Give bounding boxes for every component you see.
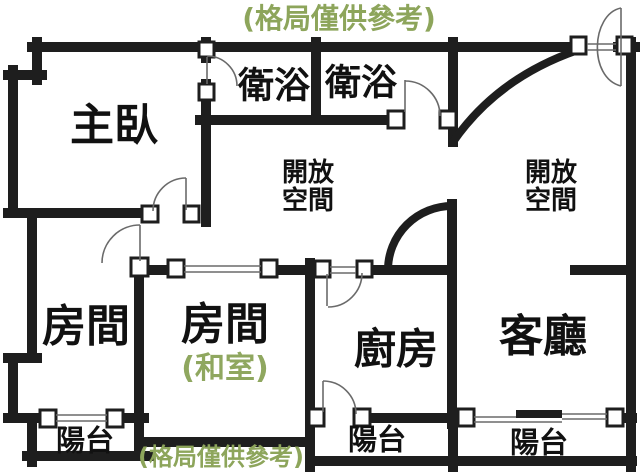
post-balcony2-door-left (309, 409, 324, 426)
post-entry-right (617, 37, 632, 54)
label-master-bedroom: 主臥 (70, 102, 158, 150)
label-open-space-1: 開放 空間 (282, 159, 334, 215)
label-room-1: 房間 (42, 303, 130, 351)
post-room2-window-left (168, 260, 184, 277)
post-bath2-door-left (388, 111, 404, 128)
label-room-2-sub: (和室) (181, 353, 268, 385)
label-balcony-3: 陽台 (510, 427, 568, 458)
living-slider-panel2 (562, 414, 607, 419)
post-living-slider-right (607, 409, 623, 426)
note-top: (格局僅供參考) (242, 4, 436, 34)
floorplan-svg (0, 0, 640, 474)
post-bath2-door-right (440, 111, 456, 128)
wall-kitchen-curve (388, 206, 452, 270)
bath2-door-arc (405, 81, 440, 116)
post-bath1-door-top (199, 42, 214, 57)
post-kitchen-door-right (357, 261, 372, 277)
label-balcony-1: 陽台 (56, 425, 114, 456)
wall-entry-curve (453, 50, 578, 142)
kitchen-door-threshold (330, 267, 356, 273)
post-living-slider-left (458, 409, 474, 426)
label-balcony-2: 陽台 (348, 424, 406, 455)
label-open-space-2: 開放 空間 (525, 159, 577, 215)
label-kitchen: 廚房 (354, 326, 438, 371)
label-bathroom-1: 衛浴 (238, 68, 310, 107)
post-bath1-door-bottom (199, 84, 214, 100)
post-room2-window-right (261, 260, 277, 277)
balcony2-door-arc (323, 381, 356, 414)
post-entry-left (571, 37, 586, 54)
label-room-2: 房間 (181, 301, 269, 349)
living-slider-bar (516, 410, 562, 418)
room1-window (56, 415, 107, 421)
post-room1-window-left (40, 410, 56, 427)
post-master-door-left (142, 206, 158, 222)
bath1-door-arc (207, 56, 237, 86)
label-bathroom-2: 衛浴 (325, 65, 397, 104)
room2-window (184, 266, 261, 272)
note-bottom: (格局僅供參考) (138, 445, 304, 471)
floorplan: (格局僅供參考) 主臥 衛浴 衛浴 開放 空間 開放 空間 房間 房間 (和室)… (0, 0, 640, 474)
entry-threshold (587, 44, 616, 50)
label-living-room: 客廳 (499, 313, 587, 361)
